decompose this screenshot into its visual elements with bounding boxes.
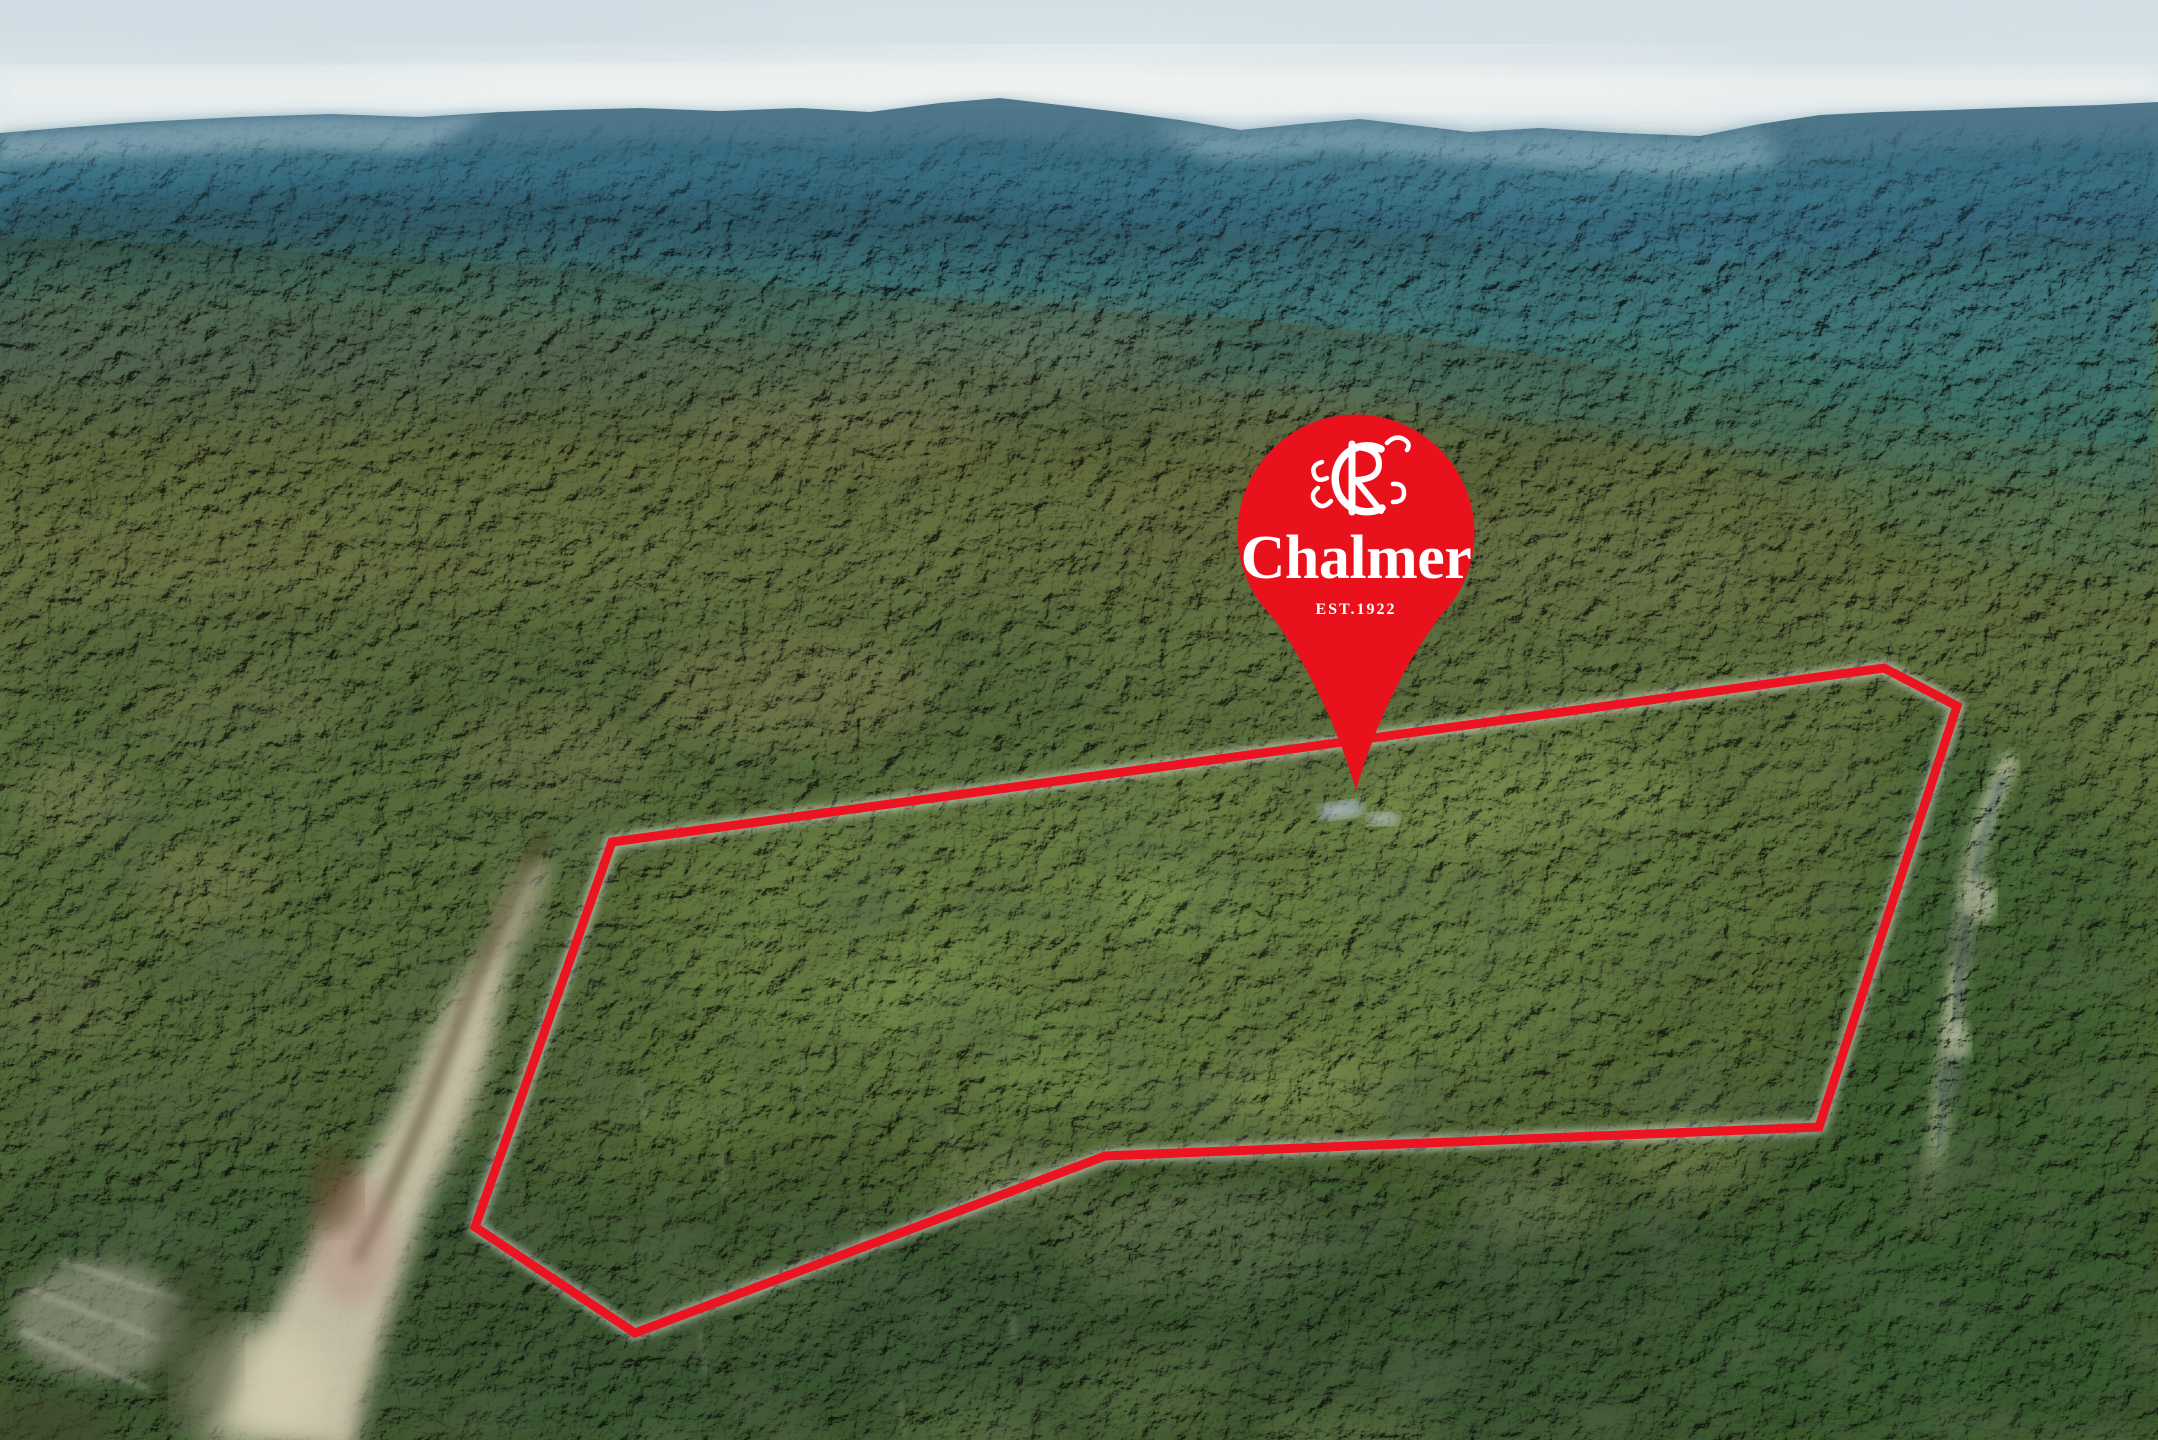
svg-text:EST.1922: EST.1922: [1315, 601, 1396, 618]
svg-text:Chalmer: Chalmer: [1241, 524, 1472, 592]
